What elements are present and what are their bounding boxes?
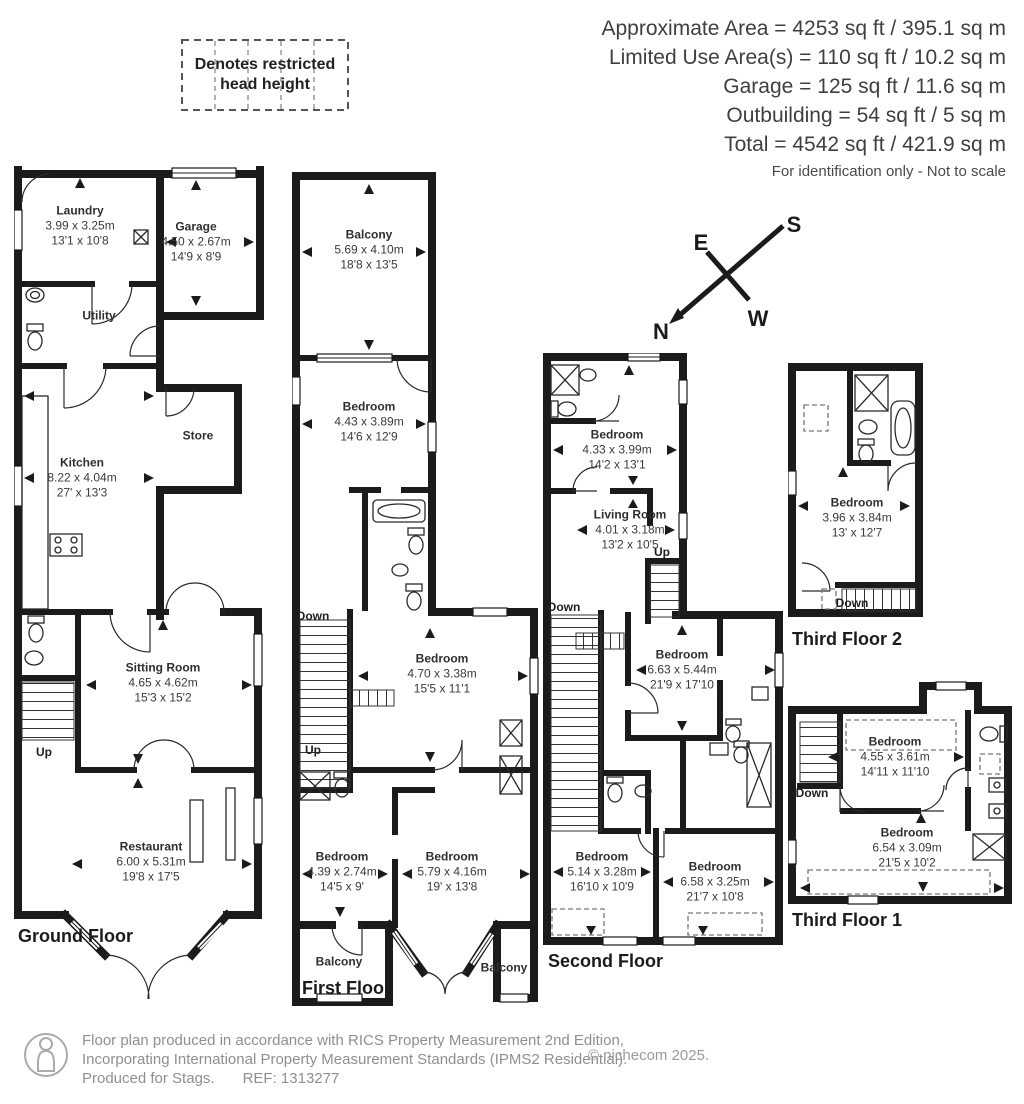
toilet-icon [858,439,874,463]
floorplan-page: Approximate Area = 4253 sq ft / 395.1 sq… [0,0,1024,1104]
fixtures [855,375,915,463]
stairs-up-label: Up [36,745,52,759]
ground-floor-plan: Laundry 3.99 x 3.25m 13'1 x 10'8 Garage … [14,166,266,1028]
compass-icon: S E W N [645,196,815,341]
room-metric: 3.96 x 3.84m [822,511,891,526]
sink-icon [580,369,596,381]
stairs-down-label: Down [836,596,869,610]
room-label-laundry: Laundry 3.99 x 3.25m 13'1 x 10'8 [45,204,114,249]
outbuilding-area: Outbuilding = 54 sq ft / 5 sq m [602,101,1007,130]
room-imperial: 21'9 x 17'10 [647,678,716,693]
measure-arrows [302,184,530,917]
shower-icon [973,834,1006,860]
room-label-kitchen: Kitchen 8.22 x 4.04m 27' x 13'3 [47,456,116,501]
room-metric: 6.00 x 5.31m [116,855,185,870]
room-name: Kitchen [47,456,116,471]
room-imperial: 19'8 x 17'5 [116,870,185,885]
room-label-bedroom-front: Bedroom 4.43 x 3.89m 14'6 x 12'9 [334,400,403,445]
stairs-down-label: Down [297,609,330,623]
room-name: Utility [82,309,115,324]
room-metric: 4.33 x 3.99m [582,443,651,458]
stairs-down-label: Down [796,786,829,800]
room-label-bedroom-middle: Bedroom 6.63 x 5.44m 21'9 x 17'10 [647,648,716,693]
fixtures [973,726,1007,860]
room-name: Bedroom [822,496,891,511]
restaurant-table [226,788,235,860]
shower-icon [551,365,579,395]
first-floor-plan: Balcony 5.69 x 4.10m 18'8 x 13'5 Bedroom… [292,172,540,1014]
room-imperial: 15'5 x 11'1 [407,682,476,697]
walls [18,170,260,955]
toilet-icon [607,777,623,802]
toilet-icon [406,584,422,610]
room-label-bedroom-rear-right: Bedroom 5.79 x 4.16m 19' x 13'8 [417,850,486,895]
room-metric: 3.99 x 3.25m [45,219,114,234]
compass-south-label: S [787,212,802,237]
produced-for: Produced for Stags. [82,1070,215,1087]
toilet-icon [28,616,44,642]
room-imperial: 14'2 x 13'1 [582,458,651,473]
room-imperial: 14'11 x 11'10 [860,765,929,780]
sink-icon [710,743,728,755]
room-metric: 6.58 x 3.25m [680,875,749,890]
room-name: Bedroom [680,860,749,875]
legend-label-line1: Denotes restricted [180,55,350,75]
room-imperial: 14'9 x 8'9 [161,250,230,265]
sink-icon [25,651,43,665]
room-imperial: 21'7 x 10'8 [680,890,749,905]
room-label-bedroom-rear-left: Bedroom 5.14 x 3.28m 16'10 x 10'9 [567,850,636,895]
room-name: Balcony [334,228,403,243]
room-name: Bedroom [334,400,403,415]
toilet-icon [408,528,424,554]
shower-icon [747,743,771,807]
floor-title-third2: Third Floor 2 [792,629,902,650]
room-metric: 4.65 x 4.62m [126,676,201,691]
room-metric: 4.39 x 2.74m [307,865,376,880]
sink-icon [26,288,44,302]
room-name: Bedroom [582,428,651,443]
room-name: Restaurant [116,840,185,855]
room-label-store: Store [183,429,214,444]
room-imperial: 27' x 13'3 [47,486,116,501]
total-area: Total = 4542 sq ft / 421.9 sq m [602,130,1007,159]
sink-icon [989,778,1006,792]
toilet-icon [551,401,576,417]
room-label-restaurant: Restaurant 6.00 x 5.31m 19'8 x 17'5 [116,840,185,885]
room-imperial: 14'6 x 12'9 [334,430,403,445]
stairs-down-label: Down [548,600,581,614]
room-metric: 6.54 x 3.09m [872,841,941,856]
identification-note: For identification only - Not to scale [602,163,1007,180]
compass-west-label: W [748,306,769,331]
second-floor-plan: Bedroom 4.33 x 3.99m 14'2 x 13'1 Living … [543,353,787,979]
room-metric: 4.50 x 2.67m [161,235,230,250]
room-label-balcony-right: Balcony [481,961,528,976]
room-label-bedroom-front: Bedroom 4.33 x 3.99m 14'2 x 13'1 [582,428,651,473]
limited-use-area: Limited Use Area(s) = 110 sq ft / 10.2 s… [602,43,1007,72]
room-name: Bedroom [860,735,929,750]
room-imperial: 18'8 x 13'5 [334,258,403,273]
footer-line-1: Floor plan produced in accordance with R… [82,1031,627,1050]
approximate-area: Approximate Area = 4253 sq ft / 395.1 sq… [602,14,1007,43]
wardrobe-icon [500,720,522,746]
room-name: Laundry [45,204,114,219]
third-floor-1-plan: Bedroom 4.55 x 3.61m 14'11 x 11'10 Bedro… [788,678,1018,940]
legend-label-line2: head height [180,75,350,95]
room-imperial: 16'10 x 10'9 [567,880,636,895]
room-label-sitting-room: Sitting Room 4.65 x 4.62m 15'3 x 15'2 [126,661,201,706]
room-metric: 5.14 x 3.28m [567,865,636,880]
room-metric: 6.63 x 5.44m [647,663,716,678]
room-label-utility: Utility [82,309,115,324]
restaurant-table [190,800,203,862]
room-name: Living Room [594,508,667,523]
room-name: Bedroom [567,850,636,865]
footer-line-2: Incorporating International Property Mea… [82,1050,627,1069]
room-imperial: 13'1 x 10'8 [45,234,114,249]
room-metric: 4.70 x 3.38m [407,667,476,682]
room-label-bedroom-rear-right: Bedroom 6.58 x 3.25m 21'7 x 10'8 [680,860,749,905]
room-name: Balcony [481,961,528,976]
stairs [800,722,840,782]
room-name: Balcony [316,955,363,970]
sink-icon [392,564,408,576]
floor-title-first: First Floor [302,978,391,999]
sink-icon [989,804,1006,818]
room-label-bedroom-lower: Bedroom 6.54 x 3.09m 21'5 x 10'2 [872,826,941,871]
room-imperial: 13' x 12'7 [822,526,891,541]
ground-floor-drawing [14,166,266,1028]
room-imperial: 14'5 x 9' [307,880,376,895]
room-metric: 4.55 x 3.61m [860,750,929,765]
legend-label: Denotes restricted head height [180,55,350,95]
third-floor-2-plan: Bedroom 3.96 x 3.84m 13' x 12'7 Down Thi… [788,363,930,659]
room-label-garage: Garage 4.50 x 2.67m 14'9 x 8'9 [161,220,230,265]
boiler-icon [134,230,148,244]
copyright-notice: © nichecom 2025. [588,1047,709,1064]
room-name: Garage [161,220,230,235]
stairs-up-label: Up [654,545,670,559]
reference-number: REF: 1313277 [243,1070,340,1087]
room-label-bedroom-middle: Bedroom 4.70 x 3.38m 15'5 x 11'1 [407,652,476,697]
room-name: Bedroom [647,648,716,663]
room-metric: 4.43 x 3.89m [334,415,403,430]
compass-north-label: N [653,319,669,341]
footer-line-3: Produced for Stags.REF: 1313277 [82,1069,627,1088]
wardrobe-icon [500,756,522,794]
person-scale-icon [22,1028,72,1084]
room-imperial: 15'3 x 15'2 [126,691,201,706]
restricted-head-height-legend: Denotes restricted head height [180,38,350,112]
room-name: Bedroom [407,652,476,667]
footer-disclaimer: Floor plan produced in accordance with R… [82,1031,627,1088]
stairs [22,682,74,740]
room-metric: 5.69 x 4.10m [334,243,403,258]
hob-icon [50,534,82,556]
stairs [300,620,394,788]
room-label-bedroom-rear-left: Bedroom 4.39 x 2.74m 14'5 x 9' [307,850,376,895]
room-label-balcony-top: Balcony 5.69 x 4.10m 18'8 x 13'5 [334,228,403,273]
room-name: Bedroom [417,850,486,865]
room-imperial: 21'5 x 10'2 [872,856,941,871]
area-summary: Approximate Area = 4253 sq ft / 395.1 sq… [602,14,1007,180]
third-floor-1-drawing [788,678,1018,940]
room-metric: 4.01 x 3.18m [594,523,667,538]
room-name: Sitting Room [126,661,201,676]
room-metric: 8.22 x 4.04m [47,471,116,486]
shower-icon [855,375,888,411]
room-metric: 5.79 x 4.16m [417,865,486,880]
toilet-icon [980,726,1007,742]
floor-title-ground: Ground Floor [18,926,133,947]
room-name: Bedroom [872,826,941,841]
kitchen-counter [22,396,48,609]
toilet-icon [726,719,741,742]
compass-east-label: E [694,230,709,255]
bath-icon [891,401,915,455]
room-name: Bedroom [307,850,376,865]
floor-title-third1: Third Floor 1 [792,910,902,931]
garage-area: Garage = 125 sq ft / 11.6 sq m [602,72,1007,101]
room-label-bedroom-upper: Bedroom 4.55 x 3.61m 14'11 x 11'10 [860,735,929,780]
toilet-icon [27,324,43,350]
room-label-balcony-left: Balcony [316,955,363,970]
room-name: Store [183,429,214,444]
room-label-bedroom: Bedroom 3.96 x 3.84m 13' x 12'7 [822,496,891,541]
sink-icon [859,420,877,434]
room-imperial: 19' x 13'8 [417,880,486,895]
windows [788,471,796,495]
stairs-up-label: Up [305,743,321,757]
sink-icon [752,687,768,700]
bath-icon [373,500,425,522]
floor-title-second: Second Floor [548,951,663,972]
